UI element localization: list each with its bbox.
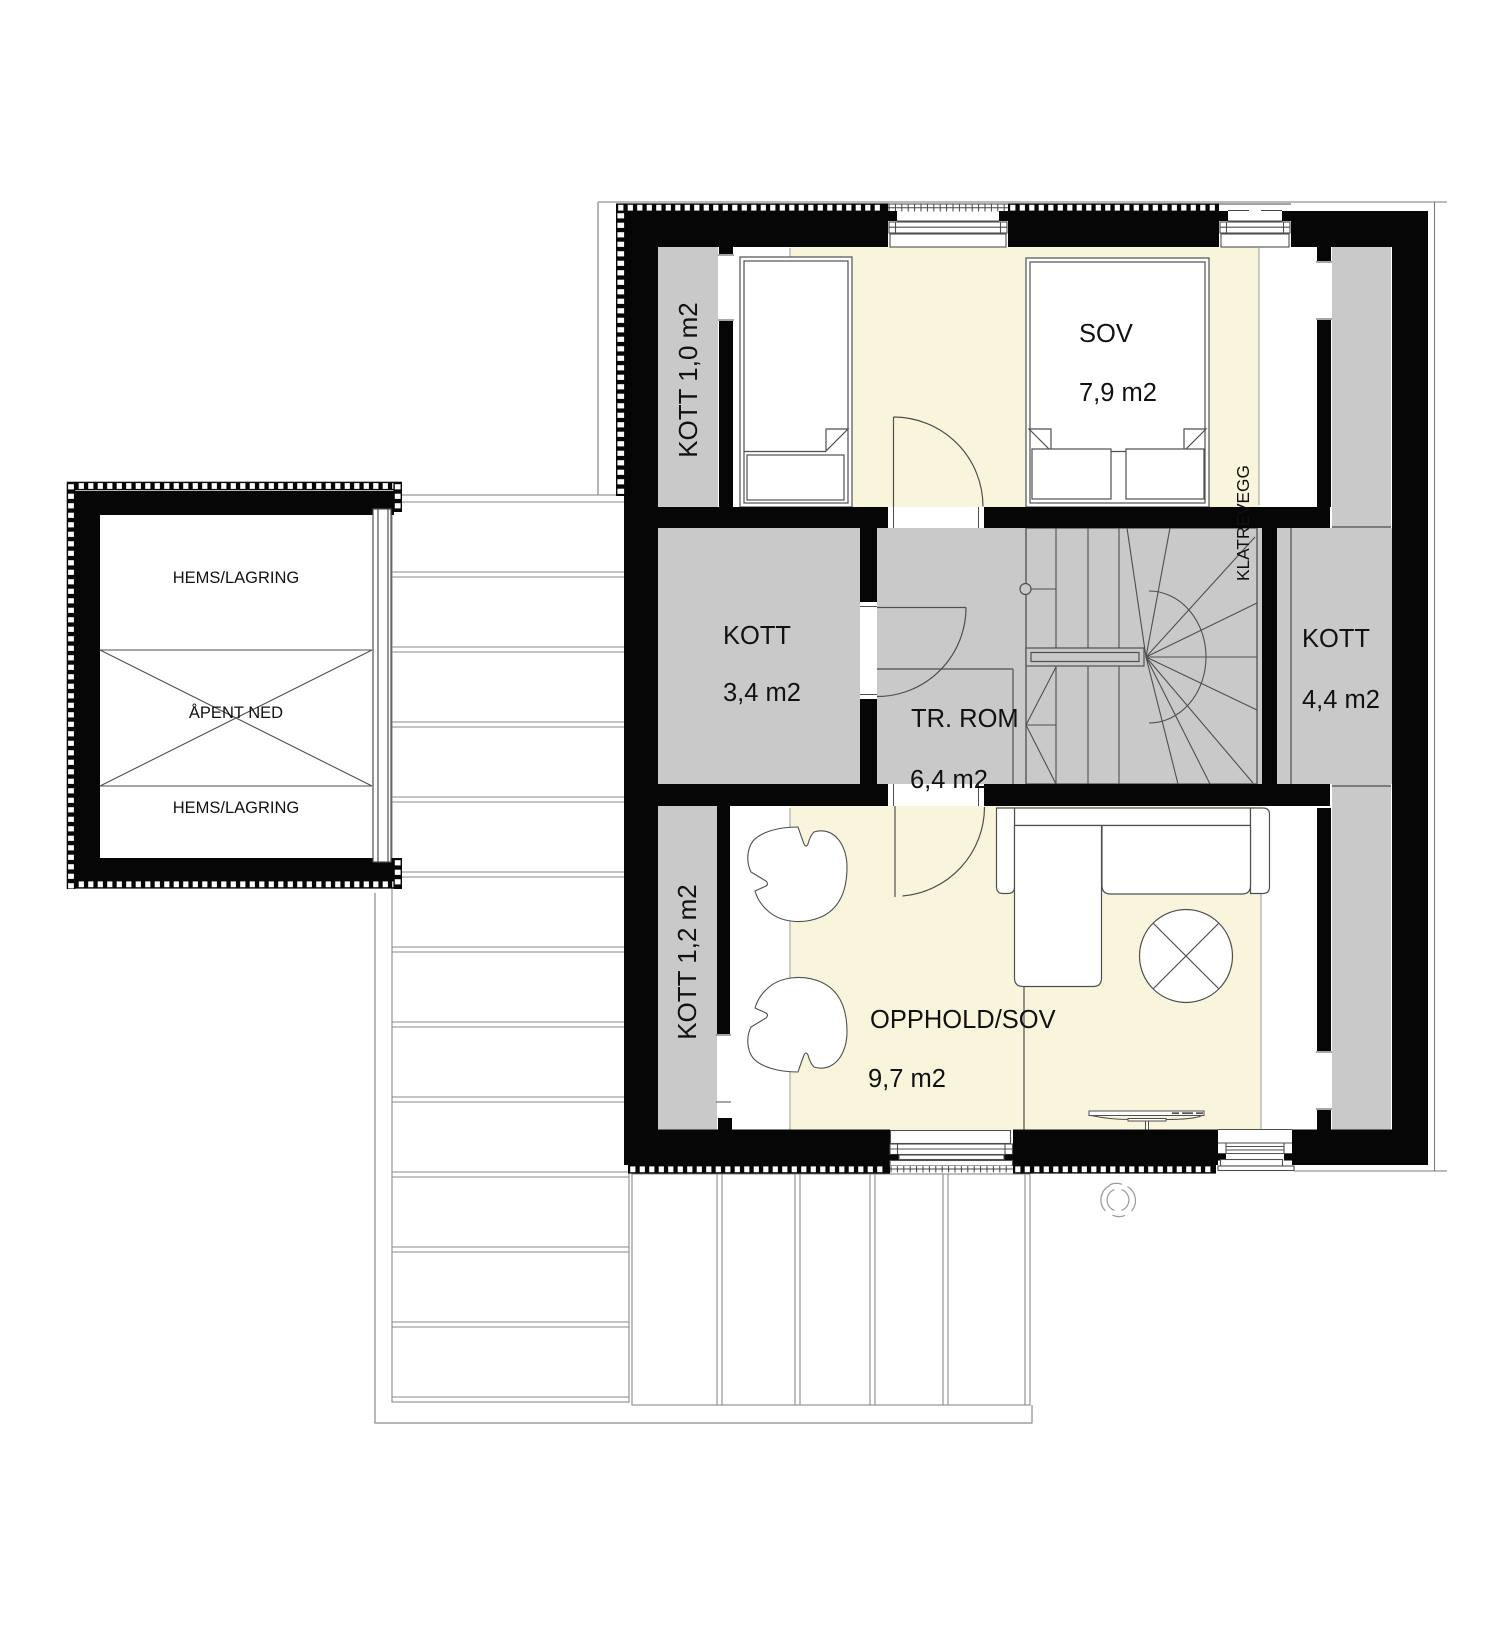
svg-text:3,4 m2: 3,4 m2 [723,679,801,707]
svg-text:HEMS/LAGRING: HEMS/LAGRING [173,569,300,587]
svg-text:KOTT: KOTT [723,622,791,650]
svg-text:KOTT: KOTT [1302,625,1370,653]
svg-text:TR. ROM: TR. ROM [911,705,1019,733]
svg-text:4,4 m2: 4,4 m2 [1302,686,1380,714]
svg-text:KLATREVEGG: KLATREVEGG [1233,465,1253,581]
svg-text:ÅPENT NED: ÅPENT NED [189,703,283,722]
svg-text:KOTT 1,0 m2: KOTT 1,0 m2 [673,302,703,458]
svg-text:KOTT 1,2 m2: KOTT 1,2 m2 [672,884,702,1040]
svg-text:7,9 m2: 7,9 m2 [1079,379,1157,407]
svg-text:9,7 m2: 9,7 m2 [868,1065,946,1093]
svg-text:OPPHOLD/SOV: OPPHOLD/SOV [870,1006,1056,1034]
svg-text:SOV: SOV [1079,320,1133,348]
svg-text:HEMS/LAGRING: HEMS/LAGRING [173,799,300,817]
svg-text:6,4 m2: 6,4 m2 [910,766,988,794]
